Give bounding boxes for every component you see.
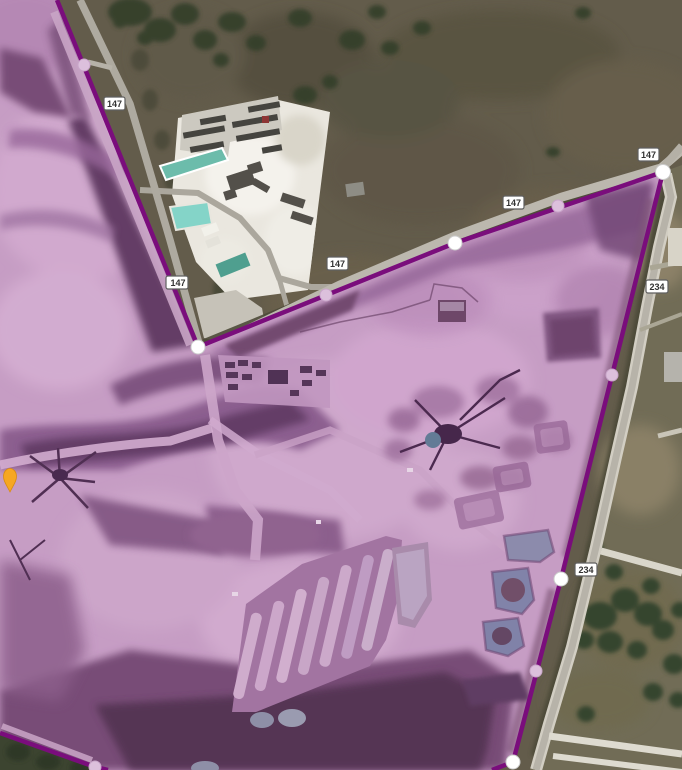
svg-text:147: 147 (330, 259, 345, 269)
svg-text:147: 147 (506, 198, 521, 208)
svg-text:234: 234 (578, 565, 593, 575)
svg-text:234: 234 (649, 282, 664, 292)
svg-text:147: 147 (107, 99, 122, 109)
svg-text:147: 147 (170, 278, 185, 288)
svg-text:147: 147 (641, 150, 656, 160)
